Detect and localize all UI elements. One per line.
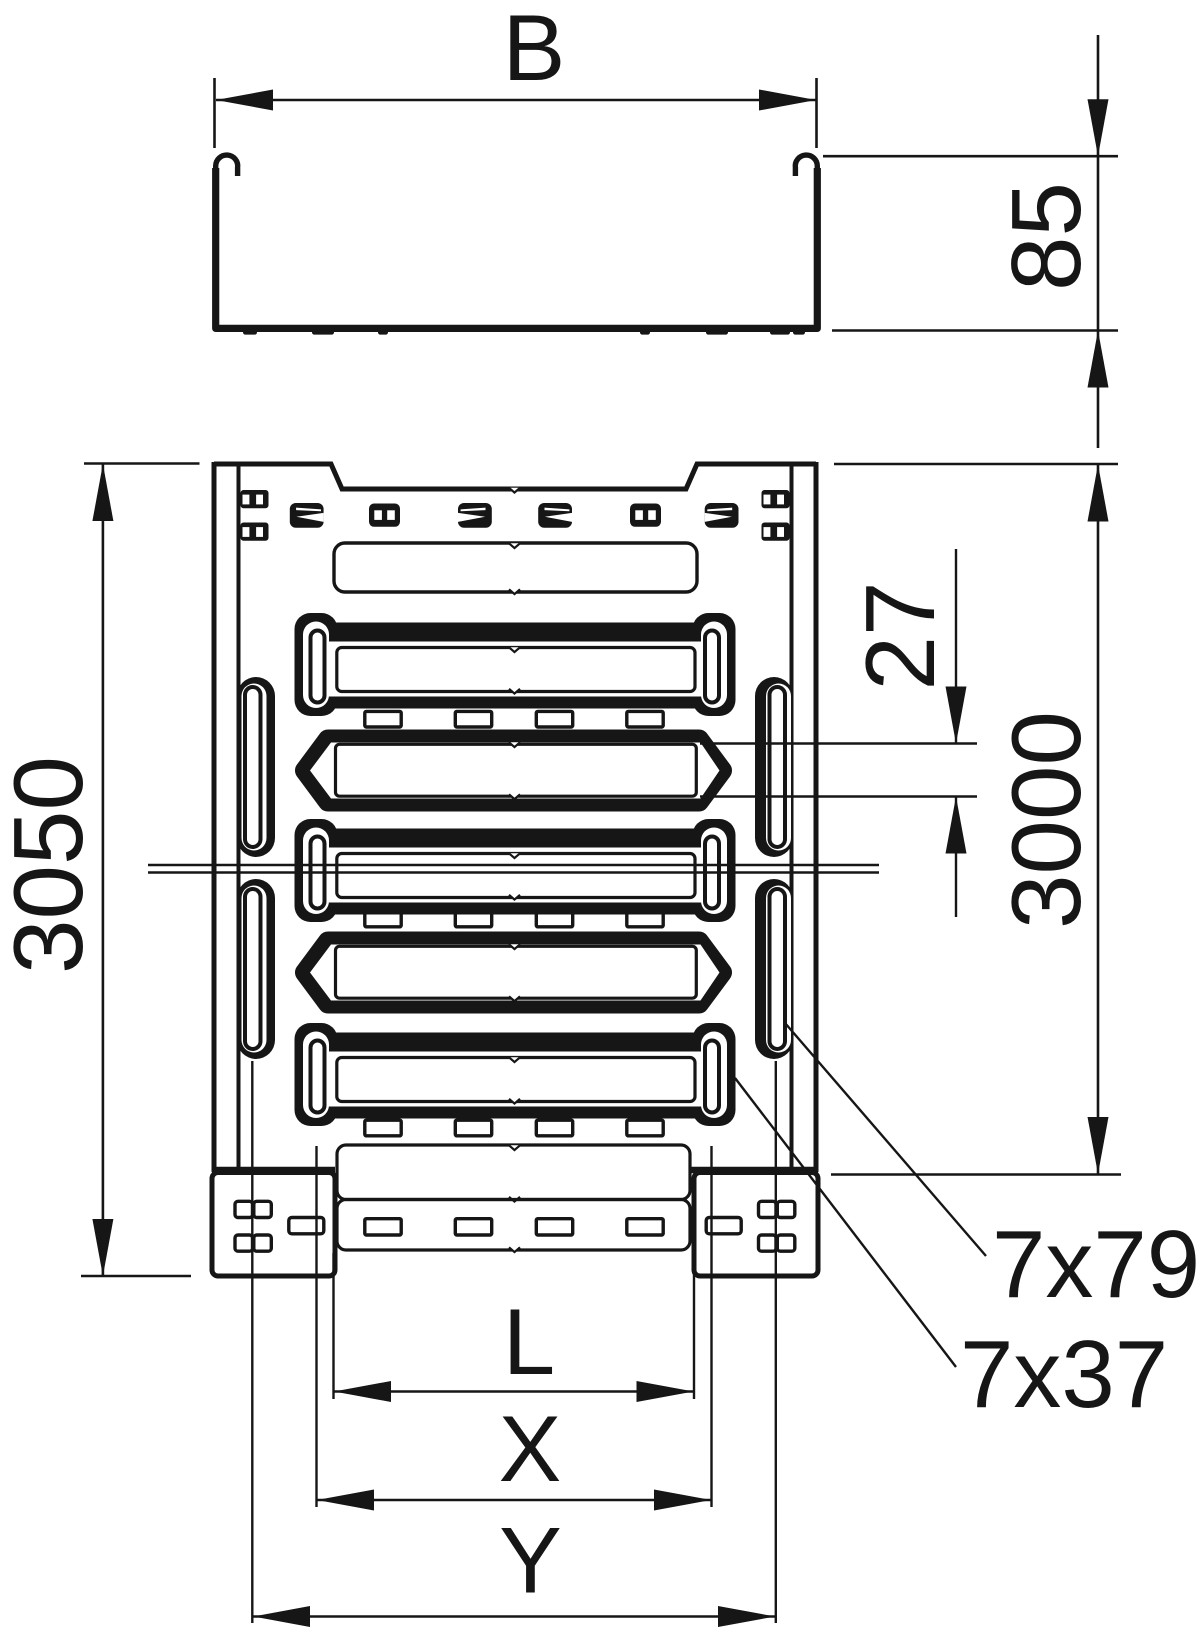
svg-text:X: X bbox=[499, 1396, 562, 1501]
svg-text:B: B bbox=[503, 0, 566, 100]
svg-text:7x79: 7x79 bbox=[992, 1211, 1200, 1318]
svg-text:L: L bbox=[503, 1289, 555, 1394]
svg-text:27: 27 bbox=[845, 581, 955, 690]
svg-text:Y: Y bbox=[499, 1508, 562, 1613]
svg-text:3000: 3000 bbox=[991, 711, 1101, 929]
svg-text:85: 85 bbox=[991, 182, 1101, 291]
svg-text:3050: 3050 bbox=[0, 756, 103, 974]
svg-text:7x37: 7x37 bbox=[960, 1321, 1168, 1428]
